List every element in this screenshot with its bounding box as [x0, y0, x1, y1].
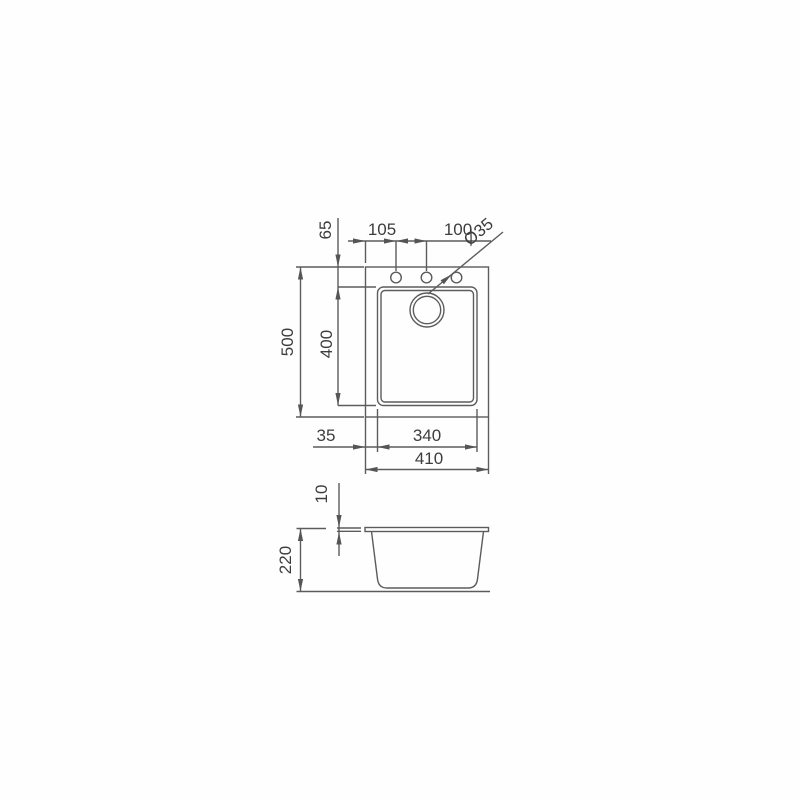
dim-label-220: 220: [276, 546, 295, 574]
arrowhead: [378, 444, 390, 449]
arrowhead: [477, 467, 489, 472]
arrowhead: [298, 579, 303, 592]
dim-label-500: 500: [278, 328, 297, 356]
arrowhead: [353, 444, 366, 449]
sink-outer-outline: [366, 267, 489, 417]
side-view-dimensions: 10 220: [276, 483, 342, 592]
tap-hole-2: [421, 272, 432, 283]
drain-outer-circle: [410, 293, 444, 327]
dim-label-35: 35: [317, 426, 336, 445]
arrowhead: [336, 515, 341, 528]
dim-label-10: 10: [312, 485, 331, 504]
dim-label-340: 340: [413, 426, 441, 445]
dim-label-65: 65: [316, 221, 335, 240]
dim-label-105: 105: [368, 220, 396, 239]
arrowhead: [415, 238, 427, 243]
sink-dimension-diagram-page: 105 100 65 400 500 Ø35: [0, 0, 800, 800]
arrowhead: [335, 255, 340, 268]
arrowhead: [396, 238, 408, 243]
arrowhead: [298, 405, 303, 418]
arrowhead: [336, 532, 341, 545]
dim-label-400: 400: [317, 330, 336, 358]
dim-label-410: 410: [415, 449, 443, 468]
top-view: [366, 267, 489, 417]
arrowhead: [353, 238, 366, 243]
sink-dimension-diagram: 105 100 65 400 500 Ø35: [0, 0, 800, 800]
arrowhead: [366, 467, 378, 472]
arrowhead: [335, 287, 340, 300]
arrowhead: [298, 267, 303, 280]
drain-inner-circle: [413, 296, 440, 323]
arrowhead: [384, 238, 396, 243]
bowl-outer-outline: [378, 287, 478, 406]
bowl-section-outline: [372, 532, 484, 589]
tap-hole-1: [391, 272, 402, 283]
bowl-inner-outline: [381, 291, 474, 403]
top-view-dimensions: 105 100 65 400 500 Ø35: [278, 214, 503, 474]
rim-section: [365, 528, 489, 532]
arrowhead: [298, 529, 303, 542]
arrowhead: [335, 393, 340, 406]
arrowhead: [465, 444, 477, 449]
side-view: [297, 528, 491, 592]
